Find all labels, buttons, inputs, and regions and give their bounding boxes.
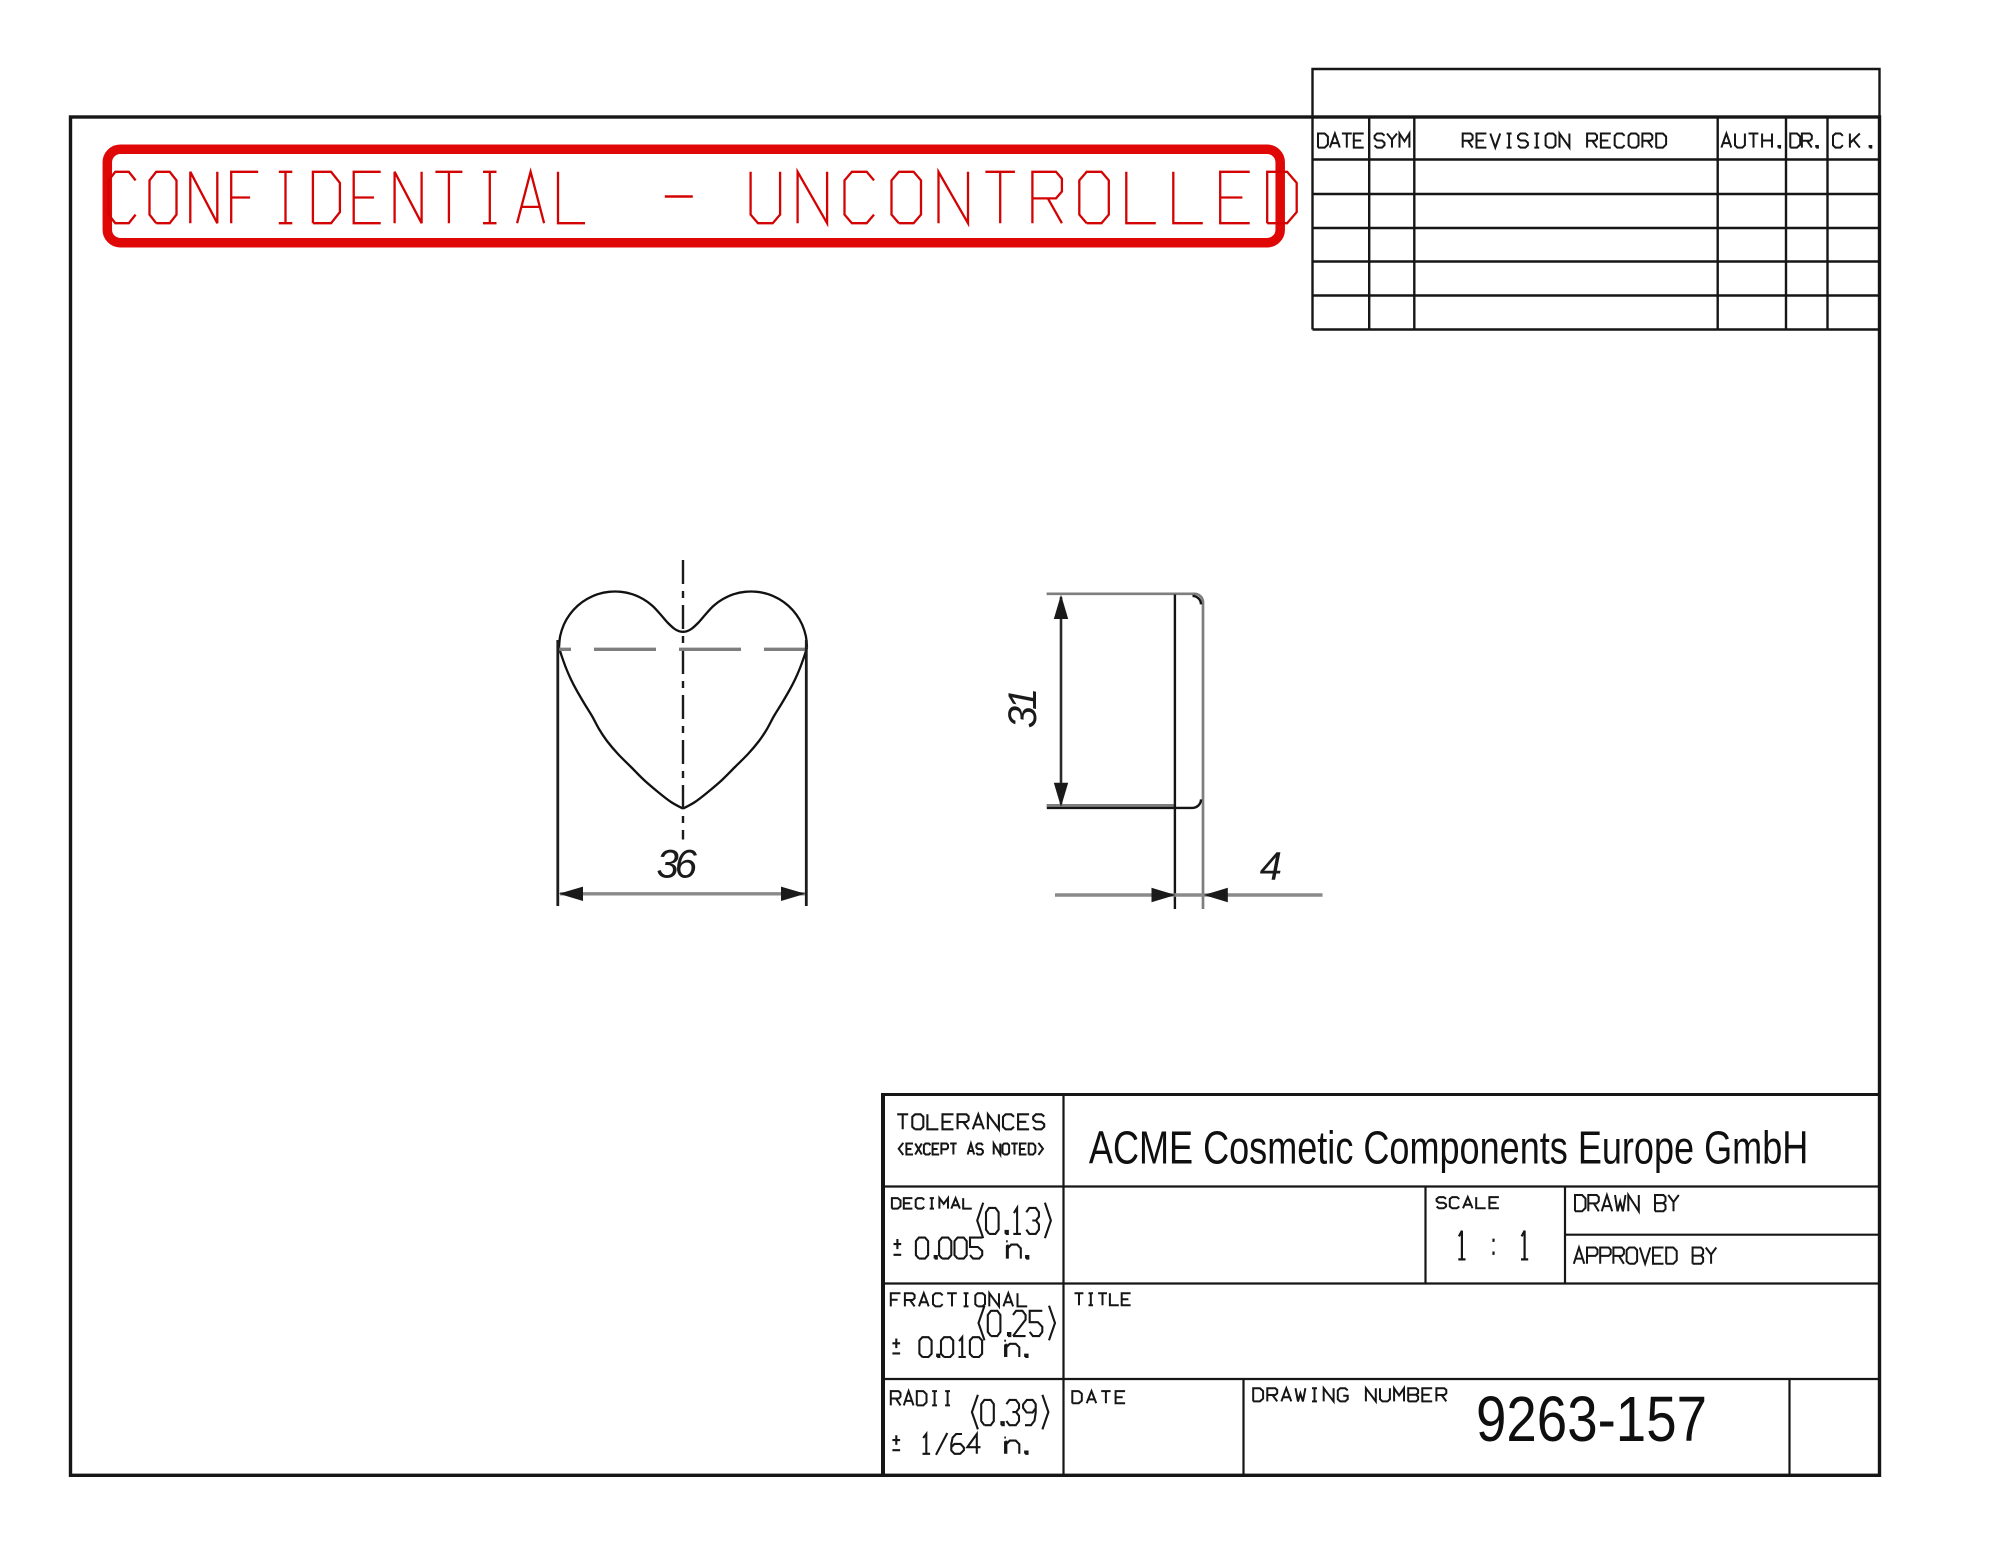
svg-text:4: 4 [1260, 845, 1282, 889]
svg-text:31: 31 [1001, 688, 1045, 729]
svg-text:ACME Cosmetic Components Europ: ACME Cosmetic Components Europe GmbH [1089, 1122, 1808, 1174]
svg-text:9263-157: 9263-157 [1476, 1383, 1707, 1455]
svg-text:36: 36 [657, 843, 698, 887]
